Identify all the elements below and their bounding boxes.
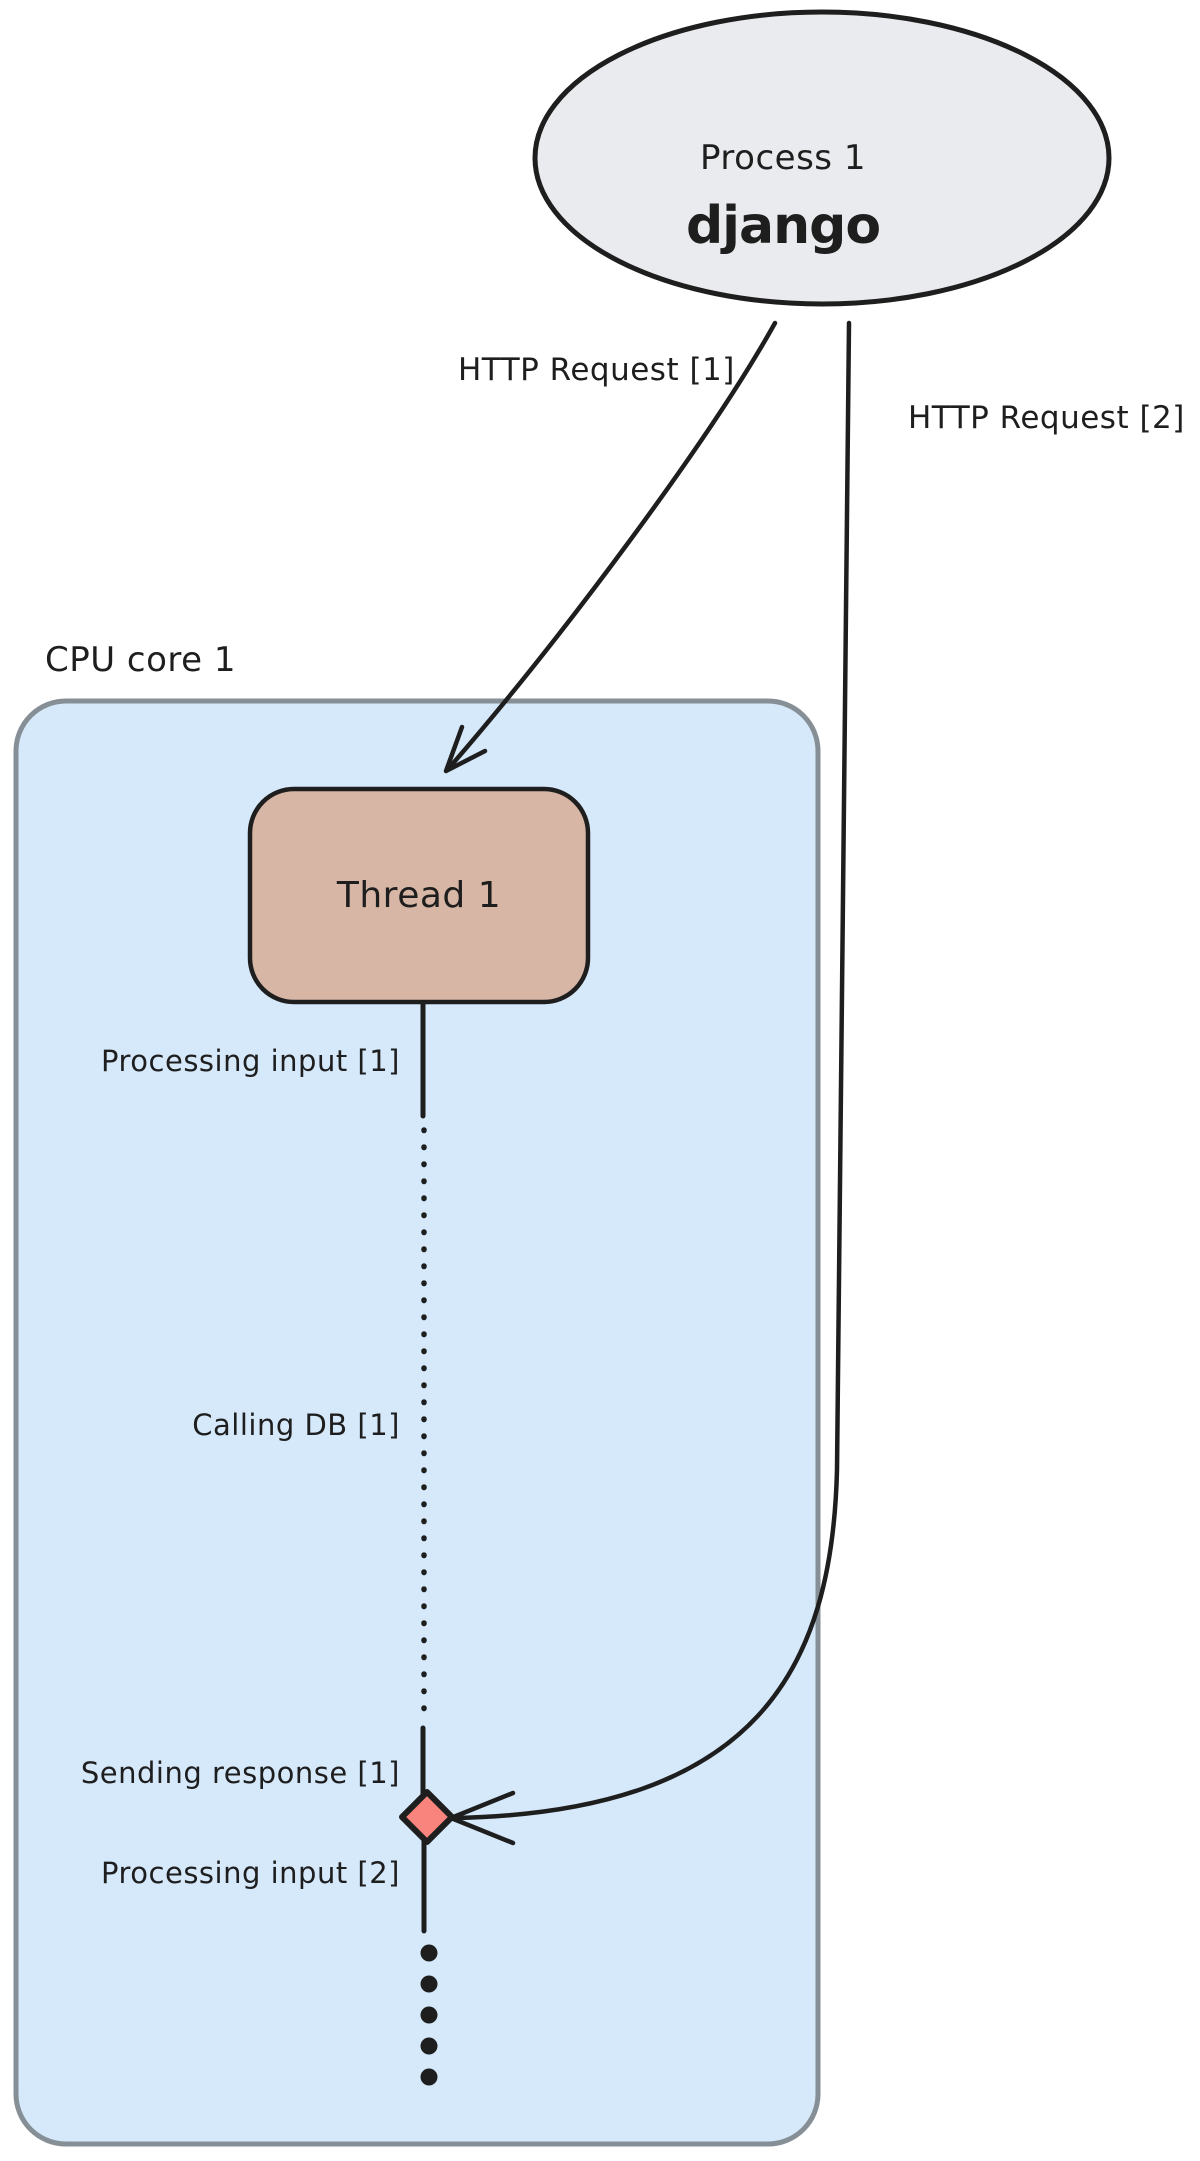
cpu-core-label: CPU core 1	[45, 640, 236, 680]
queue-dot	[421, 1976, 438, 1993]
queue-dot	[421, 1945, 438, 1962]
queue-dot	[421, 2038, 438, 2055]
diagram-shapes	[0, 0, 1200, 2161]
calling-db-1-label: Calling DB [1]	[192, 1408, 400, 1442]
http-request-1-label: HTTP Request [1]	[458, 352, 735, 388]
processing-input-2-label: Processing input [2]	[101, 1856, 400, 1890]
thread-label: Thread 1	[250, 789, 588, 1002]
diagram-canvas: Process 1 django HTTP Request [1] HTTP R…	[0, 0, 1200, 2161]
sending-response-1-label: Sending response [1]	[81, 1756, 400, 1790]
queue-dot	[421, 2007, 438, 2024]
queue-dot	[421, 2069, 438, 2086]
process-title: Process 1	[583, 138, 983, 178]
http-request-2-label: HTTP Request [2]	[908, 400, 1185, 436]
processing-input-1-label: Processing input [1]	[101, 1044, 400, 1078]
django-logo: django	[583, 196, 983, 256]
